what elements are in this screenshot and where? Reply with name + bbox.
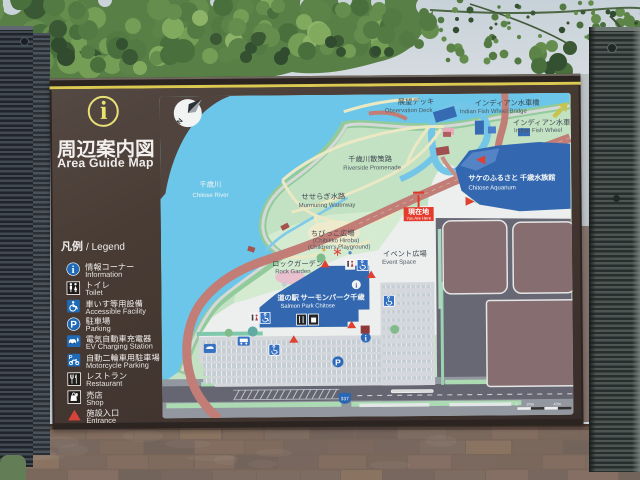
- svg-text:道の駅 サーモンパーク千歳: 道の駅 サーモンパーク千歳: [277, 293, 365, 303]
- svg-text:Indian Fish Wheel: Indian Fish Wheel: [514, 128, 562, 134]
- svg-text:Salmon Park Chitose: Salmon Park Chitose: [280, 303, 335, 309]
- svg-text:i: i: [72, 264, 75, 276]
- svg-text:インディアン水車: インディアン水車: [513, 118, 571, 128]
- svg-text:(Chibikko Hiroba): (Chibikko Hiroba): [313, 238, 359, 244]
- svg-text:せせらぎ水路: せせらぎ水路: [301, 192, 346, 201]
- svg-text:P: P: [69, 355, 73, 361]
- svg-text:P: P: [70, 319, 77, 330]
- svg-text:337: 337: [341, 396, 349, 402]
- svg-text:千歳川散策路: 千歳川散策路: [348, 154, 393, 163]
- svg-text:Chitose Aquarium: Chitose Aquarium: [468, 185, 515, 191]
- svg-text:ロックガーデン: ロックガーデン: [272, 259, 323, 268]
- svg-text:Chitose River: Chitose River: [192, 193, 228, 199]
- svg-text:Event Space: Event Space: [382, 260, 417, 266]
- svg-text:i: i: [355, 282, 357, 290]
- svg-text:Murmuring Waterway: Murmuring Waterway: [299, 203, 356, 209]
- svg-text:Riverside Promenade: Riverside Promenade: [343, 165, 401, 172]
- svg-text:インディアン水車橋: インディアン水車橋: [475, 98, 541, 108]
- svg-text:Indian Fish Wheel Bridge: Indian Fish Wheel Bridge: [460, 109, 528, 116]
- svg-text:展望デッキ: 展望デッキ: [398, 97, 435, 106]
- svg-text:ちびっこ広場: ちびっこ広場: [311, 229, 355, 238]
- svg-text:P: P: [335, 357, 341, 367]
- svg-text:Observation Deck: Observation Deck: [385, 108, 434, 114]
- svg-text:You Are Here: You Are Here: [406, 215, 431, 220]
- svg-text:サケのふるさと 千歳水族館: サケのふるさと 千歳水族館: [468, 173, 555, 183]
- svg-text:(Children's Playground): (Children's Playground): [308, 245, 371, 252]
- svg-text:20m: 20m: [526, 402, 534, 407]
- svg-text:千歳川: 千歳川: [199, 180, 221, 189]
- svg-text:Rock Garden: Rock Garden: [275, 269, 310, 275]
- svg-text:イベント広場: イベント広場: [383, 249, 427, 258]
- svg-text:40m: 40m: [553, 401, 561, 406]
